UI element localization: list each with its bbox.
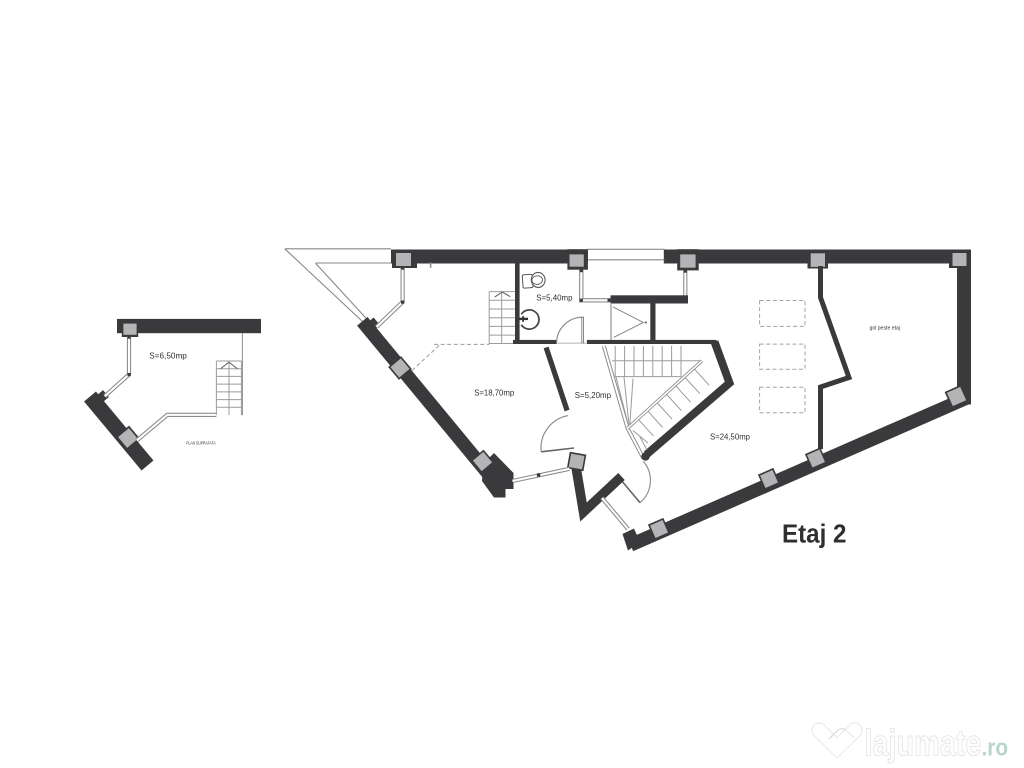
svg-text:gol peste etaj: gol peste etaj [870,325,901,331]
svg-text:.ro: .ro [982,735,1009,762]
svg-text:S=18,70mp: S=18,70mp [474,388,514,398]
svg-text:lajumate: lajumate [865,723,982,764]
svg-text:Etaj 2: Etaj 2 [782,520,847,548]
svg-text:S=6,50mp: S=6,50mp [149,350,187,360]
svg-text:S=5,40mp: S=5,40mp [536,292,572,302]
svg-text:PLAN SUPRAFATA: PLAN SUPRAFATA [186,441,216,446]
svg-text:S=5,20mp: S=5,20mp [575,390,611,400]
svg-text:S=24,50mp: S=24,50mp [710,431,750,441]
